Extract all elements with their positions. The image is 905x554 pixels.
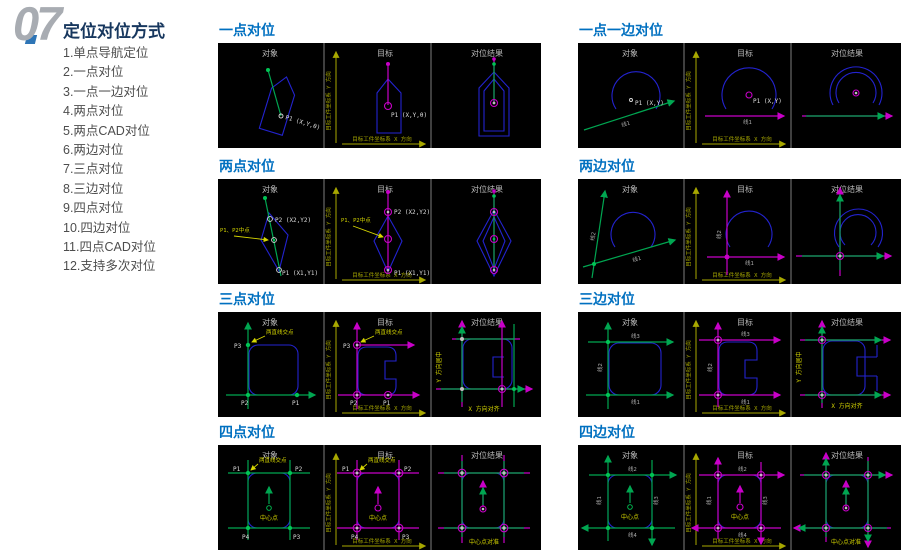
point-label: P3 [234, 343, 242, 350]
panel-title: 目标 [377, 48, 393, 58]
section-two-point: 两点对位 对象 P2 (X2,Y2) P1 (X1,Y1) P1、P2中点 目标… [218, 156, 541, 284]
panel-title: 对象 [262, 317, 278, 327]
axis-y-label: 目标工件坐标系 Y 方向 [685, 340, 693, 399]
panel-three-point-object: 对象 P3 P2 P1 两直线交点 [218, 312, 323, 417]
axis-y-label: 目标工件坐标系 Y 方向 [685, 207, 693, 266]
line-label: 线1 [631, 398, 640, 406]
panel-row: 对象 线2 线1 目标 目标工件坐标系 Y 方向 目标工件坐标系 X 方向 线2… [578, 179, 901, 284]
line-label: 线3 [741, 330, 750, 338]
panel-title: 对位结果 [831, 184, 863, 194]
line-label: 线2 [715, 230, 723, 239]
panel-one-point-object: 对象 P1 (X,Y,θ) [218, 43, 323, 148]
line-label: 线2 [706, 363, 714, 372]
axis-x-label: 目标工件坐标系 X 方向 [352, 135, 411, 143]
line-label: 线4 [628, 531, 638, 539]
line-label: 线1 [741, 398, 750, 406]
section-title: 三边对位 [579, 289, 901, 309]
line-label: 线1 [745, 259, 754, 267]
panel-two-edge-result: 对位结果 [790, 179, 897, 284]
line-label: 线2 [596, 363, 604, 372]
panel-four-edge-result: 对位结果 中心点对准 [790, 445, 897, 550]
panel-four-edge-object: 对象 线1 线3 线2 线4 中心点 [578, 445, 683, 550]
list-item: 1.单点导航定位 [63, 44, 156, 63]
panel-three-edge-object: 对象 线2 线3 线1 [578, 312, 683, 417]
panel-title: 目标 [377, 184, 393, 194]
axis-x-label: 目标工件坐标系 X 方向 [712, 135, 771, 143]
list-item: 11.四点CAD对位 [63, 238, 156, 257]
intersection-label: 两直线交点 [368, 456, 396, 464]
list-item: 3.一点一边对位 [63, 83, 156, 102]
panel-row: 对象 P2 (X2,Y2) P1 (X1,Y1) P1、P2中点 目标 目标工件… [218, 179, 541, 284]
axis-y-label: 目标工件坐标系 Y 方向 [685, 473, 693, 532]
panel-row: 对象 线2 线3 线1 目标 目标工件坐标系 Y 方向 目标工件坐标系 X 方向… [578, 312, 901, 417]
panel-row: 对象 P1 (X,Y,θ) 目标 目标工件坐标系 Y 方向 目标工件坐标系 X … [218, 43, 541, 148]
point-label: P2 (X2,Y2) [275, 217, 311, 224]
x-aligned-label: X 方向对齐 [468, 405, 499, 413]
line-label: 线1 [620, 119, 631, 129]
section-three-edge: 三边对位 对象 线2 线3 线1 目标 目标工件坐标系 Y 方向 目标工件坐标系… [578, 289, 901, 417]
section-title: 四边对位 [579, 422, 901, 442]
line-label: 线1 [743, 118, 752, 126]
panel-title: 对象 [622, 48, 638, 58]
point-label: P4 [351, 534, 359, 541]
list-item: 12.支持多次对位 [63, 257, 156, 276]
center-label: 中心点 [260, 514, 278, 522]
panel-four-point-target: 目标 目标工件坐标系 Y 方向 目标工件坐标系 X 方向 P1 P2 P4 P3… [323, 445, 430, 550]
panel-three-edge-target: 目标 目标工件坐标系 Y 方向 目标工件坐标系 X 方向 线2 线3 线1 [683, 312, 790, 417]
section-title: 一点一边对位 [579, 20, 901, 40]
point-label: P3 [293, 534, 301, 541]
point-label: P1 (X,Y) [635, 100, 664, 107]
point-label: P1 [233, 466, 241, 473]
point-label: P2 [350, 400, 358, 407]
line-label: 线2 [588, 231, 597, 241]
section-title: 两边对位 [579, 156, 901, 176]
panel-title: 对象 [622, 317, 638, 327]
page-title: 定位对位方式 [63, 17, 165, 42]
point-label: P2 [404, 466, 412, 473]
center-aligned-label: 中心点对准 [831, 538, 861, 546]
line-label: 线2 [738, 465, 747, 473]
section-one-point-one-edge: 一点一边对位 对象 线1 P1 (X,Y) 目标 目标工件坐标系 Y 方向 目标… [578, 20, 901, 148]
section-four-edge: 四边对位 对象 线1 线3 线2 线4 中心点 目标 目标工件坐标系 Y 方向 … [578, 422, 901, 550]
point-label: P4 [242, 534, 250, 541]
line-label: 线1 [631, 254, 642, 264]
panel-three-point-result: 对位结果 Y 方向居中 X 方向对齐 [430, 312, 537, 417]
panel-title: 对位结果 [471, 184, 503, 194]
section-title: 三点对位 [219, 289, 541, 309]
axis-y-label: 目标工件坐标系 Y 方向 [685, 71, 693, 130]
line-label: 线4 [738, 531, 748, 539]
line-label: 线3 [652, 496, 660, 505]
list-item: 6.两边对位 [63, 141, 156, 160]
point-label: P1 [342, 466, 350, 473]
panel-four-point-result: 对位结果 中心点对准 [430, 445, 537, 550]
line-label: 线2 [628, 465, 637, 473]
panel-title: 目标 [737, 450, 753, 460]
intersection-label: 两直线交点 [375, 328, 403, 336]
panel-two-edge-target: 目标 目标工件坐标系 Y 方向 目标工件坐标系 X 方向 线2 线1 [683, 179, 790, 284]
panel-title: 目标 [737, 48, 753, 58]
point-label: P2 (X2,Y2) [394, 209, 430, 216]
axis-x-label: 目标工件坐标系 X 方向 [712, 271, 771, 279]
section-four-point: 四点对位 对象 P1 P2 P4 P3 两直线交点 中心点 目标 目标工件坐标系… [218, 422, 541, 550]
panel-title: 对位结果 [471, 450, 503, 460]
line-label: 线1 [595, 496, 603, 505]
section-two-edge: 两边对位 对象 线2 线1 目标 目标工件坐标系 Y 方向 目标工件坐标系 X … [578, 156, 901, 284]
panel-three-point-target: 目标 目标工件坐标系 Y 方向 目标工件坐标系 X 方向 P3 P2 P1 两直… [323, 312, 430, 417]
point-label: P1 [292, 400, 300, 407]
section-one-point: 一点对位 对象 P1 (X,Y,θ) 目标 目标工件坐标系 Y 方向 目标工件坐… [218, 20, 541, 148]
midpoint-label: P1、P2中点 [341, 216, 371, 224]
axis-x-label: 目标工件坐标系 X 方向 [352, 404, 411, 412]
panel-point-edge-target: 目标 目标工件坐标系 Y 方向 目标工件坐标系 X 方向 P1 (X,Y) 线1 [683, 43, 790, 148]
panel-title: 对位结果 [831, 48, 863, 58]
point-label: P1 (X1,Y1) [282, 270, 318, 277]
center-label: 中心点 [621, 513, 639, 521]
y-centered-label: Y 方向居中 [795, 351, 803, 382]
panel-one-point-target: 目标 目标工件坐标系 Y 方向 目标工件坐标系 X 方向 P1 (X,Y,θ) [323, 43, 430, 148]
point-label: P1 (X,Y,θ) [284, 114, 321, 131]
panel-title: 目标 [377, 317, 393, 327]
point-label: P1 (X1,Y1) [394, 270, 430, 277]
point-label: P2 [295, 466, 303, 473]
panel-two-edge-object: 对象 线2 线1 [578, 179, 683, 284]
center-aligned-label: 中心点对准 [469, 538, 499, 546]
point-label: P3 [343, 343, 351, 350]
slide-number: 07 [13, 0, 59, 47]
intersection-label: 两直线交点 [259, 456, 287, 464]
point-label: P2 [241, 400, 249, 407]
y-centered-label: Y 方向居中 [435, 351, 443, 382]
panel-title: 对位结果 [831, 317, 863, 327]
point-label: P1 [383, 400, 391, 407]
list-item: 7.三点对位 [63, 160, 156, 179]
panel-one-point-result: 对位结果 [430, 43, 537, 148]
list-item: 5.两点CAD对位 [63, 122, 156, 141]
list-item: 4.两点对位 [63, 102, 156, 121]
method-list: 1.单点导航定位 2.一点对位 3.一点一边对位 4.两点对位 5.两点CAD对… [63, 44, 156, 277]
panel-title: 对位结果 [471, 317, 503, 327]
section-title: 两点对位 [219, 156, 541, 176]
line-label: 线1 [705, 496, 713, 505]
center-label: 中心点 [731, 513, 749, 521]
section-title: 一点对位 [219, 20, 541, 40]
panel-title: 目标 [737, 317, 753, 327]
panel-two-point-result: 对位结果 [430, 179, 537, 284]
list-item: 2.一点对位 [63, 63, 156, 82]
panel-point-edge-object: 对象 线1 P1 (X,Y) [578, 43, 683, 148]
axis-y-label: 目标工件坐标系 Y 方向 [325, 473, 333, 532]
panel-title: 对位结果 [831, 450, 863, 460]
panel-title: 对位结果 [471, 48, 503, 58]
section-three-point: 三点对位 对象 P3 P2 P1 两直线交点 目标 目标工件坐标系 Y 方向 目… [218, 289, 541, 417]
panel-title: 对象 [262, 48, 278, 58]
panel-title: 对象 [622, 450, 638, 460]
panel-three-edge-result: 对位结果 Y 方向居中 X 方向对齐 [790, 312, 897, 417]
center-label: 中心点 [369, 514, 387, 522]
panel-title: 对象 [622, 184, 638, 194]
point-label: P1 (X,Y,θ) [391, 112, 427, 119]
section-title: 四点对位 [219, 422, 541, 442]
axis-y-label: 目标工件坐标系 Y 方向 [325, 71, 333, 130]
panel-title: 目标 [737, 184, 753, 194]
axis-y-label: 目标工件坐标系 Y 方向 [325, 207, 333, 266]
panel-point-edge-result: 对位结果 [790, 43, 897, 148]
panel-row: 对象 线1 P1 (X,Y) 目标 目标工件坐标系 Y 方向 目标工件坐标系 X… [578, 43, 901, 148]
point-label: P3 [402, 534, 410, 541]
list-item: 9.四点对位 [63, 199, 156, 218]
panel-row: 对象 P3 P2 P1 两直线交点 目标 目标工件坐标系 Y 方向 目标工件坐标… [218, 312, 541, 417]
line-label: 线3 [631, 332, 640, 340]
panel-two-point-target: 目标 目标工件坐标系 Y 方向 目标工件坐标系 X 方向 P2 (X2,Y2) … [323, 179, 430, 284]
axis-y-label: 目标工件坐标系 Y 方向 [325, 340, 333, 399]
midpoint-label: P1、P2中点 [220, 226, 250, 234]
panel-row: 对象 P1 P2 P4 P3 两直线交点 中心点 目标 目标工件坐标系 Y 方向… [218, 445, 541, 550]
panel-two-point-object: 对象 P2 (X2,Y2) P1 (X1,Y1) P1、P2中点 [218, 179, 323, 284]
point-label: P1 (X,Y) [753, 98, 782, 105]
list-item: 8.三边对位 [63, 180, 156, 199]
panel-four-edge-target: 目标 目标工件坐标系 Y 方向 目标工件坐标系 X 方向 线1 线3 线2 线4… [683, 445, 790, 550]
x-aligned-label: X 方向对齐 [831, 402, 862, 410]
panel-four-point-object: 对象 P1 P2 P4 P3 两直线交点 中心点 [218, 445, 323, 550]
panel-title: 对象 [262, 184, 278, 194]
list-item: 10.四边对位 [63, 219, 156, 238]
intersection-label: 两直线交点 [266, 328, 294, 336]
line-label: 线3 [761, 496, 769, 505]
panel-row: 对象 线1 线3 线2 线4 中心点 目标 目标工件坐标系 Y 方向 目标工件坐… [578, 445, 901, 550]
